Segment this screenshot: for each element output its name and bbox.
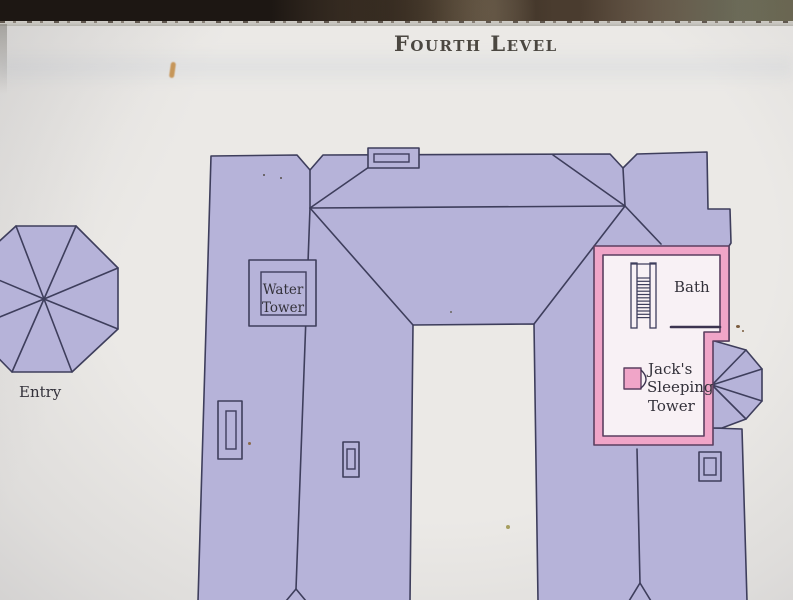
stain-speck (263, 174, 265, 176)
water-tower-label-line1: Water (263, 282, 304, 298)
jacks-tower-label-line2: Sleeping (647, 378, 714, 396)
floor-plan-drawing: Water Tower Entry (0, 0, 793, 600)
jacks-tower-label-line1: Jack's (646, 360, 692, 378)
chimney-icon (343, 442, 359, 477)
chimney-icon (699, 452, 721, 481)
entry-octagon-roof (0, 226, 118, 372)
entry-pavilion: Entry (0, 226, 118, 401)
chimney-icon (218, 401, 242, 459)
stain-speck (0, 24, 7, 94)
jacks-tower-label-line3: Tower (648, 397, 696, 415)
stain-speck (450, 311, 452, 313)
water-tower-label-line2: Tower (262, 300, 305, 316)
water-tower-marker: Water Tower (249, 260, 316, 326)
stain-speck (742, 330, 744, 332)
photo-of-floor-plan-sign: Fourth Level (0, 0, 793, 600)
stain-speck (506, 525, 510, 529)
turret-bay-icon (711, 340, 762, 428)
highlighted-room: Bath Jack's Sleeping Tower (594, 246, 729, 445)
chimney-icon (368, 148, 419, 168)
stain-speck (280, 177, 282, 179)
entry-label: Entry (19, 383, 62, 401)
turret-outline (711, 340, 762, 428)
bath-room-label: Bath (674, 278, 710, 296)
stain-speck (736, 325, 740, 328)
stain-speck (248, 442, 251, 445)
